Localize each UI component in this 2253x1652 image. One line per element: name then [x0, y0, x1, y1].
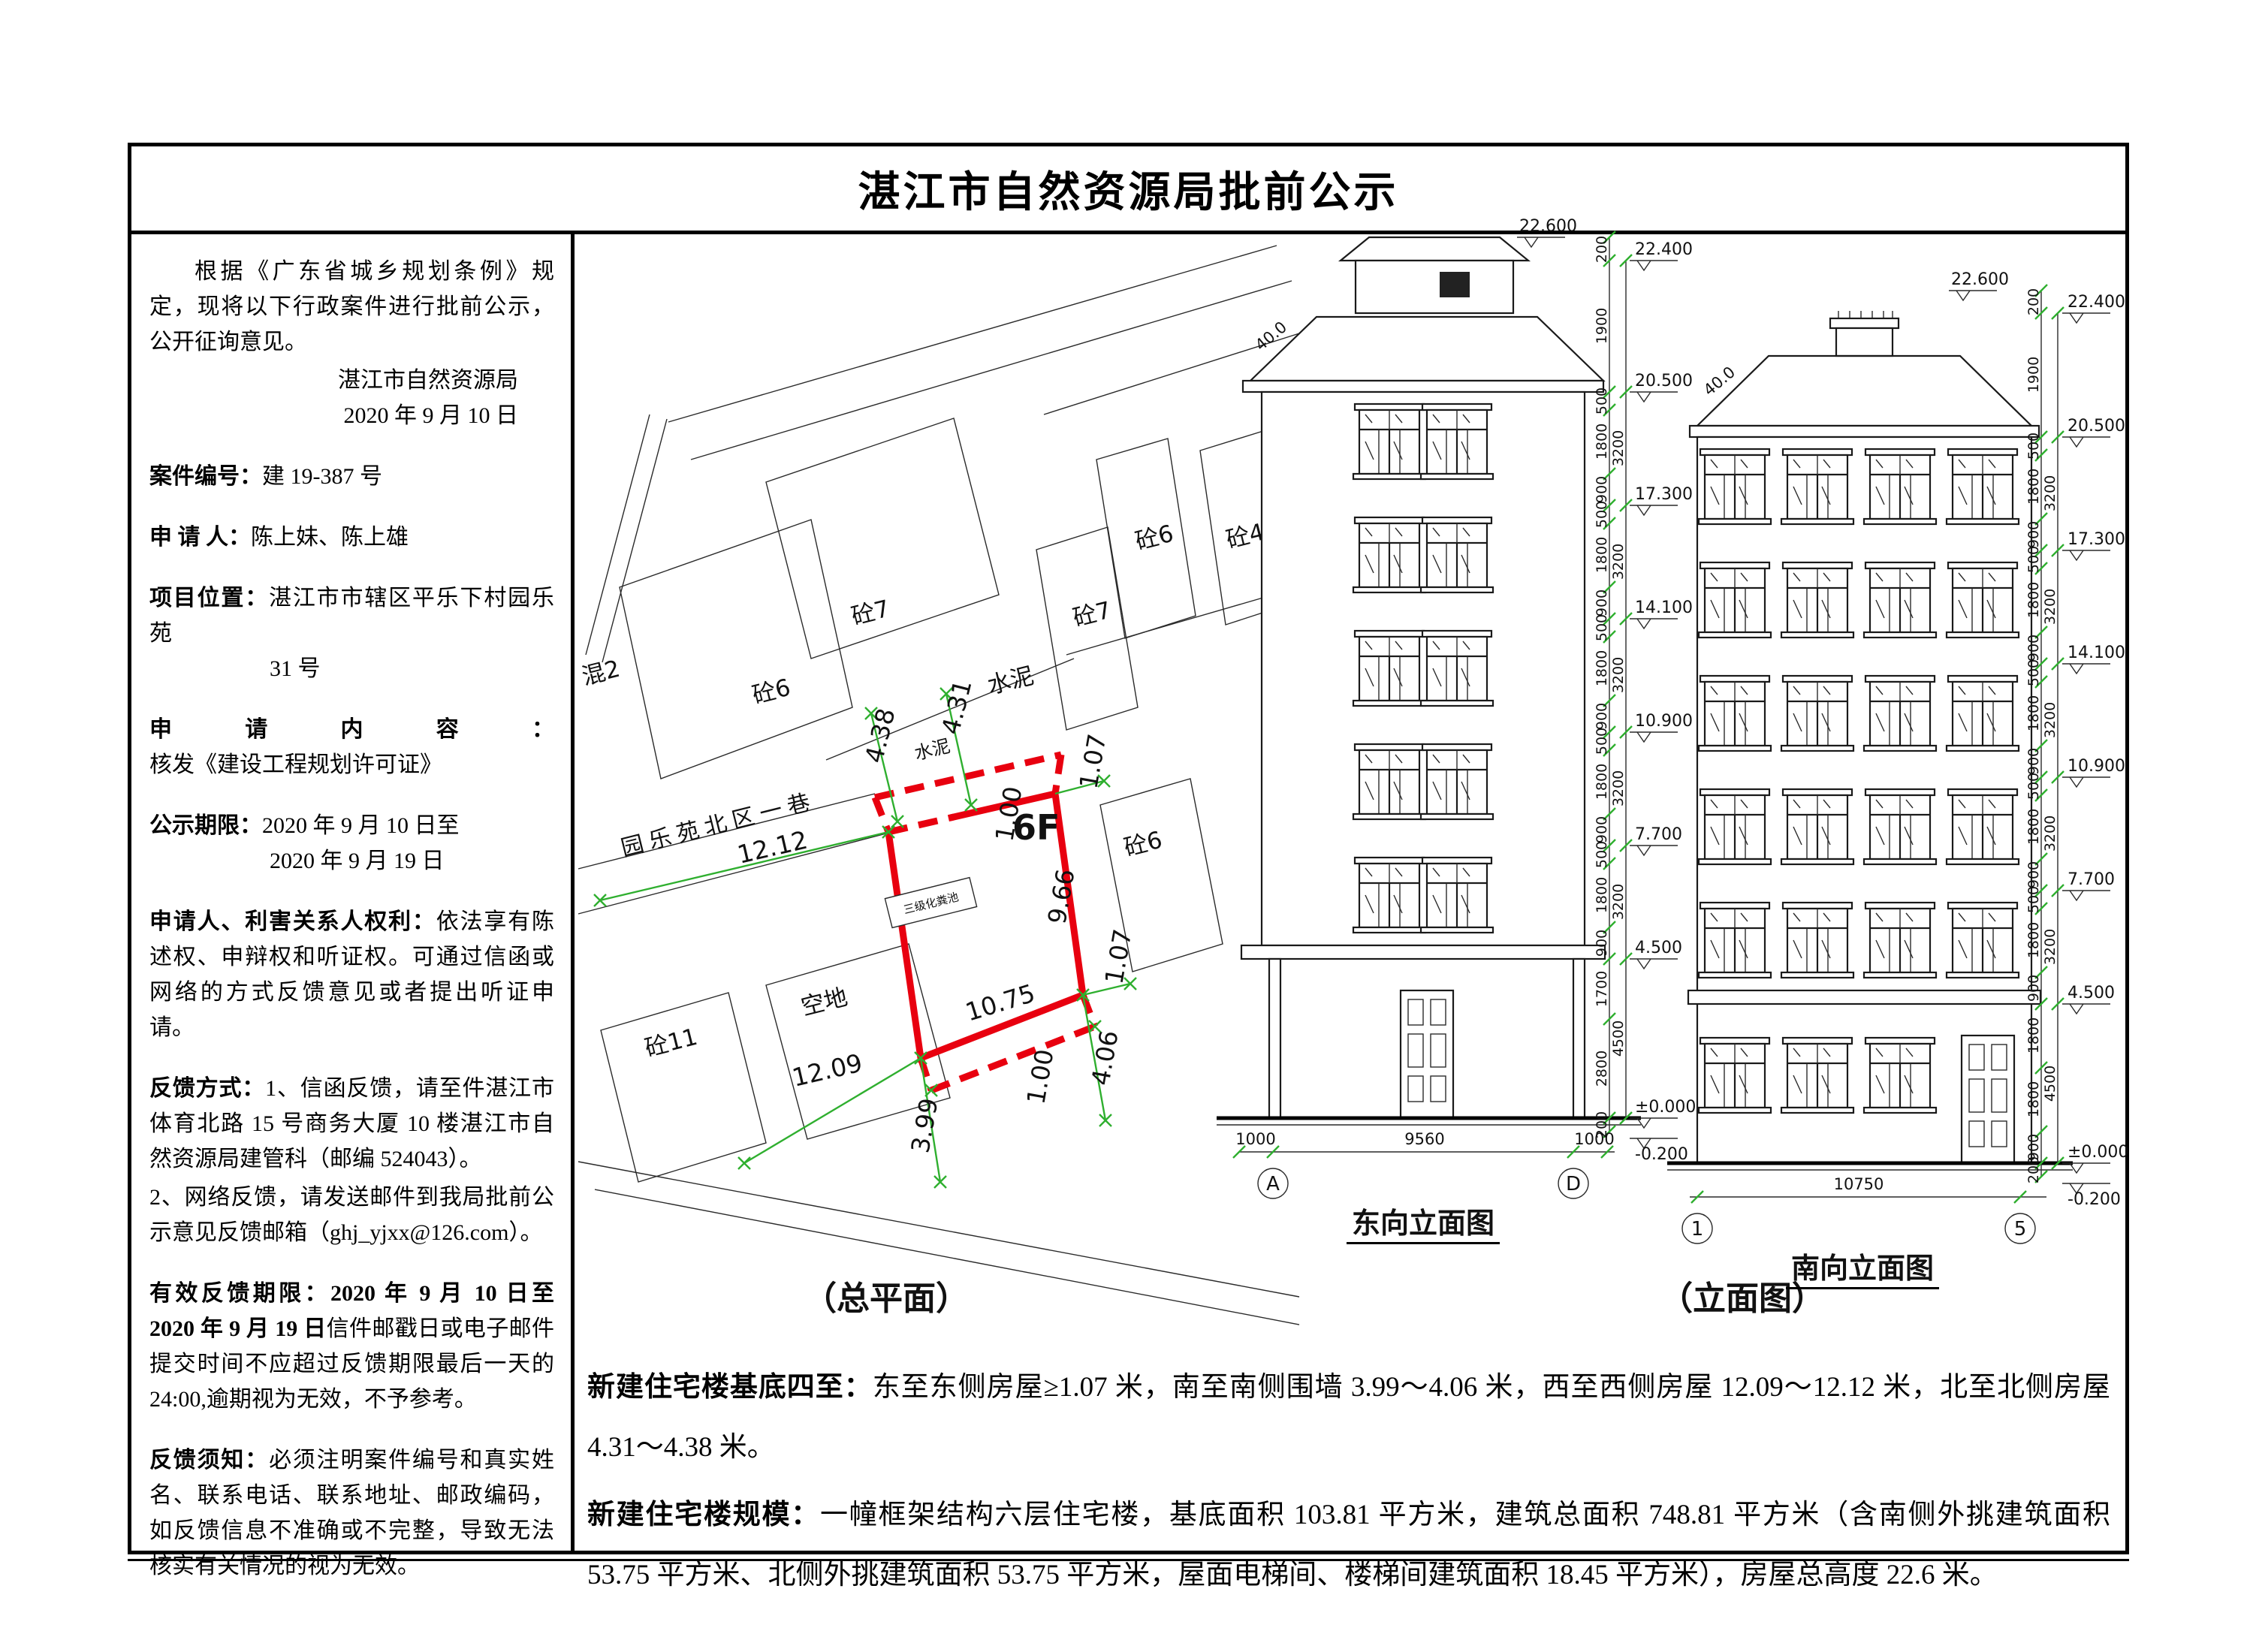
field-content: 申请内容：核发《建设工程规划许可证》	[149, 712, 554, 782]
title-bar: 湛江市自然资源局批前公示	[131, 146, 2125, 234]
building-scale-paragraph: 新建住宅楼规模：一幢框架结构六层住宅楼，基底面积 103.81 平方米，建筑总面…	[587, 1485, 2110, 1605]
title-underline	[1786, 1287, 1939, 1289]
chain-dim: 900	[2025, 635, 2042, 662]
chain-dim: 200	[2025, 1156, 2042, 1183]
chain-dim: 4500	[2042, 1066, 2058, 1102]
east-elevation-title: 东向立面图	[1352, 1208, 1494, 1240]
site-plan: 三级化粪池 砼6 砼7 水泥 砼7 砼6 砼4 混2 砼11 空地 砼6 园乐苑…	[578, 246, 1299, 1325]
axis-number: 5	[2014, 1218, 2027, 1241]
east-elevation: 40.0 200 1900 500 1800 90	[1217, 217, 1696, 1244]
chain-dim: 3200	[2042, 589, 2058, 625]
chain-dim: 4500	[1610, 1020, 1627, 1057]
field-valid-period: 有效反馈期限：2020 年 9 月 10 日至 2020 年 9 月 19 日信…	[149, 1276, 554, 1417]
parcel-label: 空地	[798, 984, 850, 1021]
level-mark: 22.400	[2068, 293, 2125, 312]
drawings-area: 三级化粪池 砼6 砼7 水泥 砼7 砼6 砼4 混2 砼11 空地 砼6 园乐苑…	[578, 234, 2125, 1551]
field-applicant: 申 请 人：陈上妹、陈上雄	[149, 520, 554, 555]
column	[1573, 959, 1585, 1118]
chain-dim: 500	[1594, 387, 1610, 415]
eave-band	[1690, 426, 2039, 437]
field-feedback-2: 2、网络反馈，请发送邮件到我局批前公示意见反馈邮箱（ghj_yjxx@126.c…	[149, 1180, 554, 1250]
level-mark: 4.500	[2068, 984, 2115, 1002]
level-mark: 14.100	[1635, 598, 1693, 617]
dim-label: 4.31	[936, 677, 978, 737]
dim-label: 1.07	[1099, 927, 1137, 986]
chain-dim: 3200	[2042, 702, 2058, 738]
page: { "title": "湛江市自然资源局批前公示", "left": { "in…	[0, 0, 2253, 1652]
plot-boundary-dashed	[888, 817, 954, 832]
chain-dim: 1900	[1594, 308, 1610, 344]
penthouse	[1356, 261, 1513, 313]
level-mark: 4.500	[1635, 939, 1682, 957]
level-mark: 22.600	[1951, 270, 2009, 289]
level-mark: ±0.000	[2068, 1143, 2128, 1162]
survey-tick-marks	[594, 688, 1136, 1188]
level-mark: 22.400	[1635, 240, 1693, 259]
level-mark: -0.200	[2068, 1190, 2121, 1209]
field-period: 公示期限：2020 年 9 月 10 日至2020 年 9 月 19 日	[149, 808, 554, 879]
chain-dim: 3200	[1610, 430, 1627, 466]
chain-dim: 1800	[2025, 582, 2042, 618]
level-mark: ±0.000	[1635, 1098, 1696, 1117]
survey-lines	[600, 694, 1130, 1182]
eave-band	[1243, 381, 1603, 392]
dim-label: 3.99	[905, 1096, 943, 1155]
parcel-label: 水泥	[985, 662, 1036, 700]
chain-dim: 1800	[2025, 922, 2042, 958]
slab-band	[1688, 990, 2040, 1004]
field-notice: 反馈须知：必须注明案件编号和真实姓名、联系电话、联系地址、邮政编码，如反馈信息不…	[149, 1442, 554, 1584]
chain-dim: 3200	[2042, 475, 2058, 511]
penthouse-roof	[1830, 318, 1899, 328]
bottom-summary: 新建住宅楼基底四至：东至东侧房屋≥1.07 米，南至南侧围墙 3.99～4.06…	[587, 1358, 2110, 1613]
field-feedback-1: 反馈方式：1、信函反馈，请至件湛江市体育北路 15 号商务大厦 10 楼湛江市自…	[149, 1071, 554, 1177]
chain-dim: 3200	[1610, 770, 1627, 806]
column	[1269, 959, 1280, 1118]
chain-dim: 3200	[1610, 544, 1627, 580]
chain-dim: 3200	[2042, 815, 2058, 852]
penthouse-railing	[1838, 311, 1893, 318]
axis-letter: D	[1566, 1173, 1581, 1195]
level-mark: 7.700	[1635, 825, 1682, 844]
chain-dim: 900	[1594, 930, 1610, 957]
cement-label: 水泥	[912, 735, 952, 764]
chain-dim: 500	[2025, 659, 2042, 686]
dim-label: 12.09	[789, 1048, 865, 1093]
title-underline	[1347, 1242, 1500, 1244]
level-mark: 14.100	[2068, 644, 2125, 662]
signature-block: 湛江市自然资源局 2020 年 9 月 10 日	[149, 363, 554, 433]
field-rights: 申请人、利害关系人权利：依法享有陈述权、申辩权和听证权。可通过信函或网络的方式反…	[149, 904, 554, 1045]
axis-dim: 10750	[1834, 1175, 1884, 1193]
chain-dim: 900	[2025, 975, 2042, 1002]
parcel-outline	[601, 993, 766, 1182]
chain-dim: 900	[2025, 861, 2042, 888]
south-elevation: 40.0 200 1900 500 1800 900	[1667, 270, 2128, 1289]
chain-dim: 1800	[1594, 537, 1610, 573]
chain-dim: 900	[1594, 476, 1610, 503]
chain-dim: 1800	[1594, 650, 1610, 686]
notice-text-panel: 根据《广东省城乡规划条例》规定，现将以下行政案件进行批前公示，公开征询意见。 湛…	[131, 234, 575, 1551]
chain-dim: 1800	[2025, 695, 2042, 731]
level-mark: -0.200	[1635, 1145, 1688, 1164]
axis-dim: 1000	[1235, 1130, 1275, 1148]
axis-dim: 1000	[1574, 1130, 1614, 1148]
chain-dim: 1800	[2025, 809, 2042, 845]
level-mark: 17.300	[1635, 485, 1693, 504]
roof-vent	[1440, 272, 1470, 297]
chain-dim: 500	[1594, 841, 1610, 868]
chain-dim: 900	[2025, 521, 2042, 548]
field-location: 项目位置：湛江市市辖区平乐下村园乐苑31 号	[149, 580, 554, 686]
parcel-label: 砼6	[1133, 520, 1176, 556]
elevation-caption: （立面图）	[1660, 1280, 1825, 1317]
site-plan-caption: （总平面）	[804, 1280, 969, 1317]
chain-dim: 900	[2025, 748, 2042, 775]
page-title: 湛江市自然资源局批前公示	[858, 158, 1399, 219]
south-elevation-title: 南向立面图	[1791, 1253, 1934, 1285]
parcel-label: 砼11	[642, 1023, 700, 1063]
chain-dim: 3200	[2042, 929, 2058, 965]
chain-dim: 2800	[1594, 1051, 1610, 1087]
level-mark: 17.300	[2068, 530, 2125, 549]
penthouse-roof	[1341, 237, 1528, 261]
roof-slope-label: 40.0	[1700, 363, 1739, 399]
chain-dim: 3200	[1610, 657, 1627, 693]
parcel-label: 砼4	[1223, 519, 1267, 554]
chain-dim: 500	[2025, 886, 2042, 913]
drawings-svg: 三级化粪池 砼6 砼7 水泥 砼7 砼6 砼4 混2 砼11 空地 砼6 园乐苑…	[578, 234, 2129, 1353]
axis-number: 1	[1691, 1218, 1704, 1241]
chain-dim: 3200	[1610, 884, 1627, 920]
penthouse	[1836, 328, 1893, 356]
chain-dim: 1800	[1594, 764, 1610, 800]
chain-dim: 500	[2025, 773, 2042, 800]
level-mark: 22.600	[1519, 217, 1577, 236]
dim-label: 4.38	[859, 705, 901, 766]
axis-letter: A	[1266, 1173, 1280, 1195]
level-mark: 7.700	[2068, 870, 2115, 889]
chain-dim: 500	[2025, 546, 2042, 573]
parcel-outline	[620, 520, 852, 779]
parcel-label: 砼7	[849, 595, 892, 631]
parcel-label: 混2	[579, 656, 623, 691]
parcel-label: 砼6	[749, 674, 793, 710]
chain-dim: 900	[1594, 816, 1610, 843]
chain-dim: 200	[2025, 288, 2042, 315]
chain-dim: 1800	[1594, 877, 1610, 913]
agency-name: 湛江市自然资源局	[149, 363, 518, 398]
chain-dim: 500	[1594, 614, 1610, 641]
chain-dim: 500	[1594, 728, 1610, 755]
notice-date: 2020 年 9 月 10 日	[149, 398, 518, 433]
chain-dim: 900	[1594, 589, 1610, 616]
parcel-label: 砼6	[1121, 827, 1165, 862]
chain-dim: 1900	[2025, 357, 2042, 393]
chain-dim: 500	[1594, 501, 1610, 528]
level-mark: 20.500	[2068, 417, 2125, 436]
main-roof	[1697, 356, 2031, 426]
chain-dim: 1700	[1594, 971, 1610, 1007]
chain-dim: 200	[1594, 236, 1610, 263]
chain-dim: 500	[2025, 433, 2042, 460]
level-mark: 10.900	[1635, 712, 1693, 731]
notice-document: 湛江市自然资源局批前公示 根据《广东省城乡规划条例》规定，现将以下行政案件进行批…	[128, 143, 2129, 1554]
slab-band	[1241, 945, 1605, 959]
level-mark: 10.900	[2068, 757, 2125, 776]
level-mark: 20.500	[1635, 372, 1693, 390]
axis-dim: 9560	[1404, 1130, 1444, 1148]
chain-dim: 1800	[2025, 1081, 2042, 1117]
chain-dim: 900	[1594, 703, 1610, 730]
field-case-no: 案件编号：建 19-387 号	[149, 459, 554, 494]
road-lines-upper	[586, 246, 1292, 662]
parcel-label: 砼7	[1070, 597, 1114, 632]
site-boundaries-paragraph: 新建住宅楼基底四至：东至东侧房屋≥1.07 米，南至南侧围墙 3.99～4.06…	[587, 1358, 2110, 1478]
main-roof	[1250, 317, 1603, 381]
chain-dim: 1800	[2025, 469, 2042, 505]
chain-dim: 1800	[2025, 1017, 2042, 1054]
chain-dim: 1800	[1594, 424, 1610, 460]
intro-paragraph: 根据《广东省城乡规划条例》规定，现将以下行政案件进行批前公示，公开征询意见。	[149, 254, 554, 360]
